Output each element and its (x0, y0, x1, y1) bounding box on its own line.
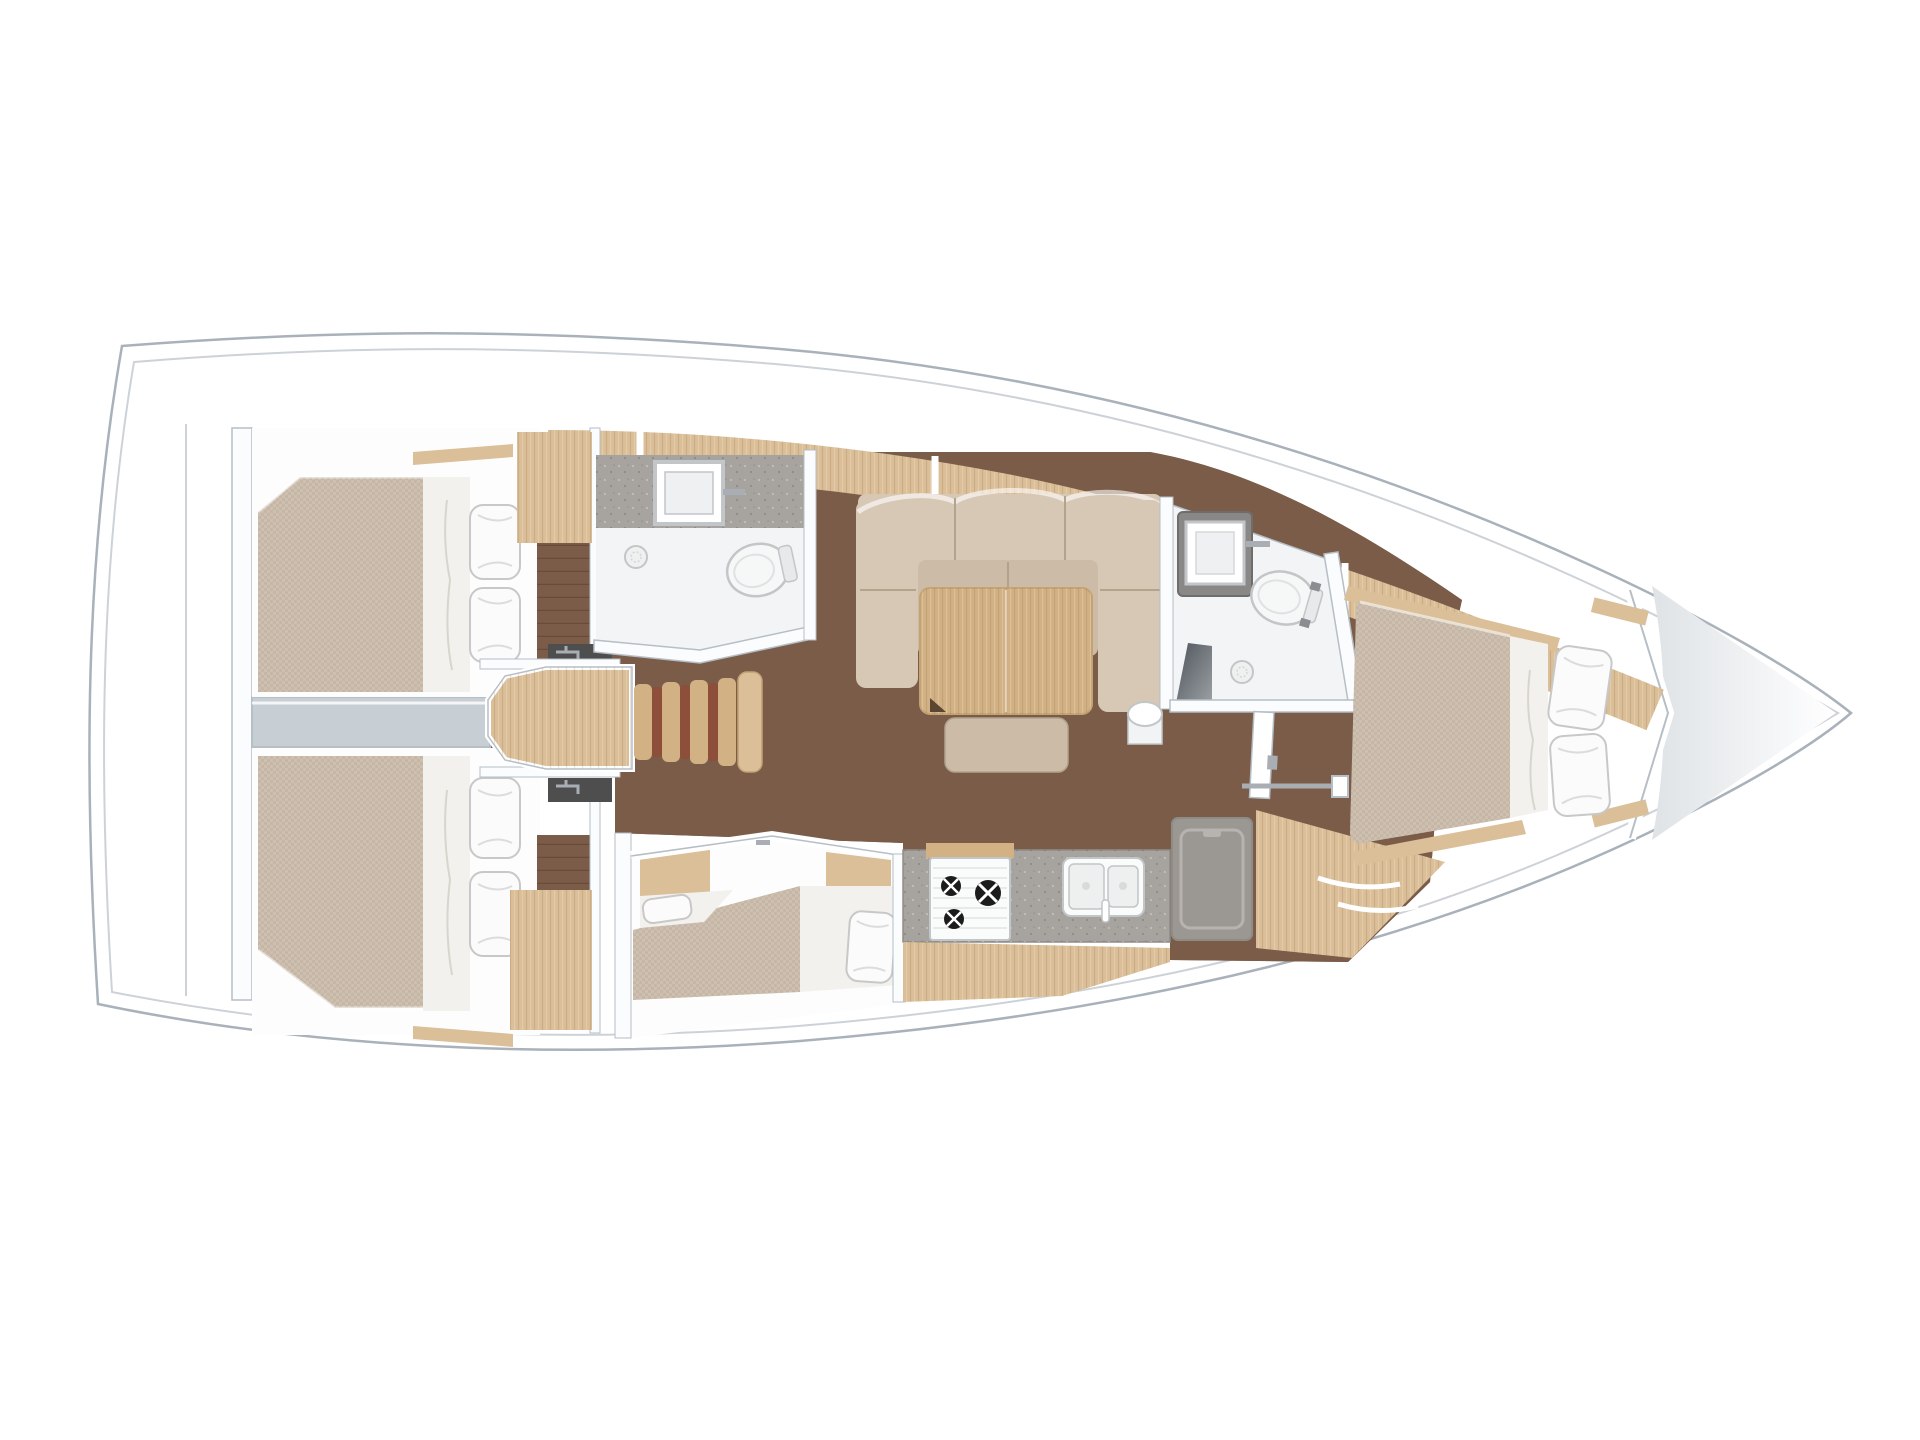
floor-plan-canvas (0, 0, 1920, 1440)
pillow (1549, 733, 1610, 817)
teak-floor-strip (537, 835, 592, 923)
salon-table (920, 588, 1092, 714)
mast-post (1128, 702, 1162, 744)
forward-head (1160, 497, 1362, 799)
berth-mattress (258, 756, 423, 1008)
faucet-icon (1102, 900, 1109, 922)
sheet-runner (423, 477, 470, 692)
shower-drain (1231, 661, 1253, 683)
salon-bench (945, 718, 1068, 772)
companionway-platform (488, 667, 632, 769)
salon-settee (856, 490, 1162, 712)
door-handle (1267, 755, 1278, 770)
cabin-walls (615, 833, 905, 1038)
pillow (470, 505, 520, 579)
cabin-door (1250, 712, 1280, 799)
companionway-wall (480, 767, 620, 777)
head-side-wall (804, 450, 816, 640)
sheet-runner (1510, 636, 1548, 818)
fridge (1172, 818, 1252, 940)
bow-wood-trim (1591, 597, 1649, 625)
galley-counter (903, 850, 1170, 942)
galley-sink (1063, 858, 1144, 922)
wardrobe (413, 432, 592, 543)
shower-drain (625, 546, 647, 568)
door-handle (756, 840, 770, 845)
faucet-icon (723, 489, 745, 495)
faucet-icon (556, 780, 578, 794)
head-vanity (1178, 512, 1270, 596)
settee-chaise-right (1098, 500, 1162, 712)
mid-cabin (615, 833, 905, 1038)
shower-bench (1176, 643, 1212, 703)
galley (903, 818, 1252, 1002)
head-floor (1172, 505, 1352, 705)
faucet-icon (1246, 541, 1270, 547)
forward-cabin (1256, 586, 1613, 958)
toilet (1245, 564, 1326, 633)
aft-cabin-starboard (252, 748, 612, 1047)
head-floor (596, 455, 810, 653)
yacht-floor-plan (0, 0, 1920, 1440)
bow-wood-trim (1591, 799, 1649, 827)
berth-side-trim (1344, 586, 1560, 652)
settee-seat-cushions (918, 560, 1098, 656)
pillow (642, 894, 693, 924)
cabin-bulkhead (590, 781, 600, 1033)
v-berth-mattress (1350, 602, 1510, 844)
head-counter (596, 455, 810, 528)
cabin-floor (252, 428, 540, 697)
cabin-bulkhead (590, 428, 600, 668)
head-side-wall (1324, 552, 1362, 701)
pillow (1547, 644, 1614, 731)
forepeak-anchor-locker (1652, 586, 1836, 840)
companionway (480, 659, 762, 777)
faucet-icon (556, 646, 578, 660)
cabin-floor (252, 748, 540, 1035)
hull-outline (89, 333, 1851, 1050)
fridge-handle (1203, 830, 1221, 837)
wood-locker (640, 844, 891, 903)
deck-inner-line (104, 349, 1838, 1035)
salon-floor (488, 452, 1462, 962)
aft-head (594, 450, 816, 663)
entry-steps (1256, 810, 1445, 958)
teak-floor-strip (537, 540, 592, 665)
head-sink (655, 462, 745, 524)
cabin-floor (631, 838, 893, 1038)
hull (89, 333, 1851, 1050)
head-door-wall (1170, 700, 1354, 712)
salon (856, 490, 1162, 772)
sheet-wedge (640, 890, 733, 928)
head-door-wall (594, 626, 812, 663)
head-side-wall (1160, 497, 1173, 709)
toilet (722, 537, 799, 602)
cabin-vanity (548, 644, 612, 668)
berth-side-trim (1352, 820, 1526, 866)
wardrobe (413, 890, 592, 1047)
pillow (846, 910, 897, 983)
stove (926, 843, 1014, 940)
pillow (470, 778, 520, 858)
companionway-steps (634, 672, 762, 772)
cabin-vanity (548, 778, 612, 802)
aft-cabin-port (252, 428, 612, 697)
settee-chaise-left (856, 500, 918, 688)
companionway-wall (480, 659, 620, 669)
engine-box (252, 697, 490, 747)
engine-compartment (252, 697, 490, 747)
berth-mattress (258, 477, 423, 692)
pillow (470, 872, 520, 956)
settee-back-cushions (858, 494, 1162, 590)
sheet-runner (800, 886, 898, 992)
table-fold-mark (930, 698, 946, 712)
berth-mattress (633, 886, 898, 1000)
anchor-locker-bulkhead (1630, 590, 1668, 838)
towel-rail (1242, 776, 1348, 797)
transom-bulkhead (232, 428, 252, 1000)
burner-icon (941, 876, 1001, 929)
sheet-runner (423, 756, 470, 1011)
hullside-cabinetry (548, 428, 1655, 710)
galley-cabinet-front (903, 942, 1170, 1002)
pillow (470, 588, 520, 662)
bow (1591, 586, 1836, 840)
